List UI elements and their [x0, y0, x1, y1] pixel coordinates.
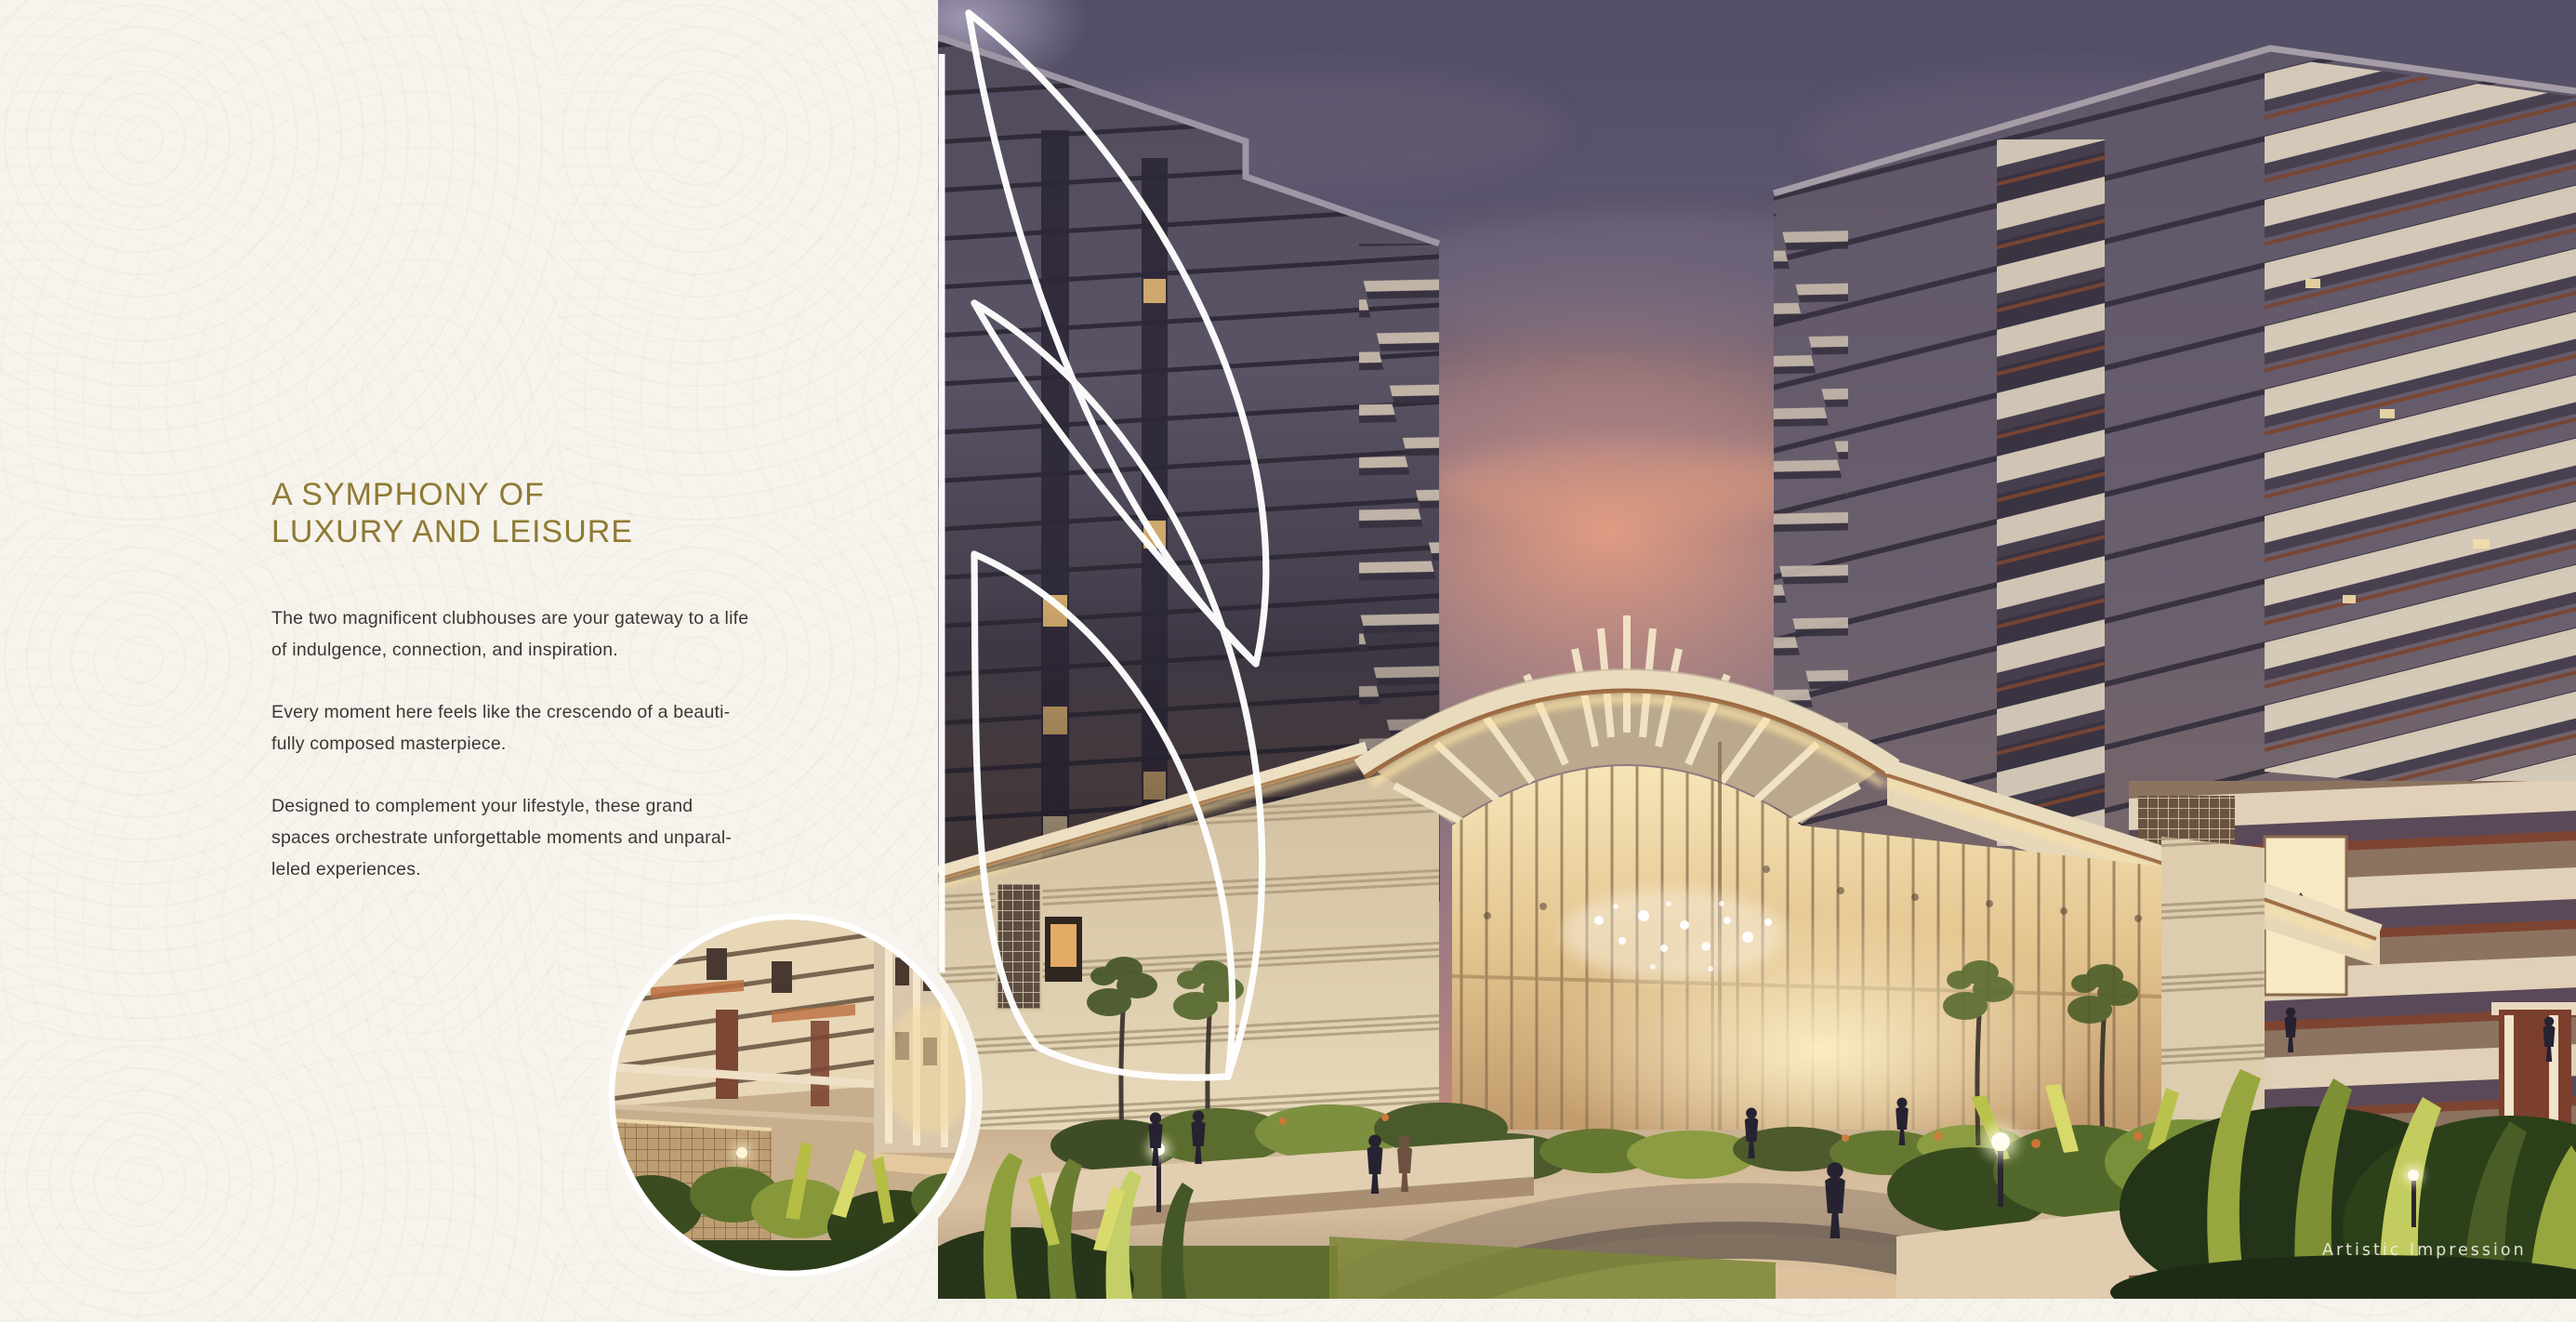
clubhouse-scene: Artistic Impression: [938, 0, 2576, 1299]
chandelier: [1562, 890, 1785, 979]
intro-paragraph-1: The two magnificent clubhouses are your …: [271, 602, 885, 666]
artistic-impression-caption: Artistic Impression: [2322, 1241, 2527, 1260]
brochure-spread: A SYMPHONY OF LUXURY AND LEISURE The two…: [0, 0, 2576, 1322]
clubhouse-rendering: Artistic Impression: [938, 0, 2576, 1299]
intro-panel: A SYMPHONY OF LUXURY AND LEISURE The two…: [271, 476, 885, 916]
intro-paragraph-2: Every moment here feels like the crescen…: [271, 696, 885, 760]
page-title: A SYMPHONY OF LUXURY AND LEISURE: [271, 476, 885, 550]
jali-lattice-panel: [997, 883, 1041, 1010]
intro-paragraph-3: Designed to complement your lifestyle, t…: [271, 790, 885, 885]
